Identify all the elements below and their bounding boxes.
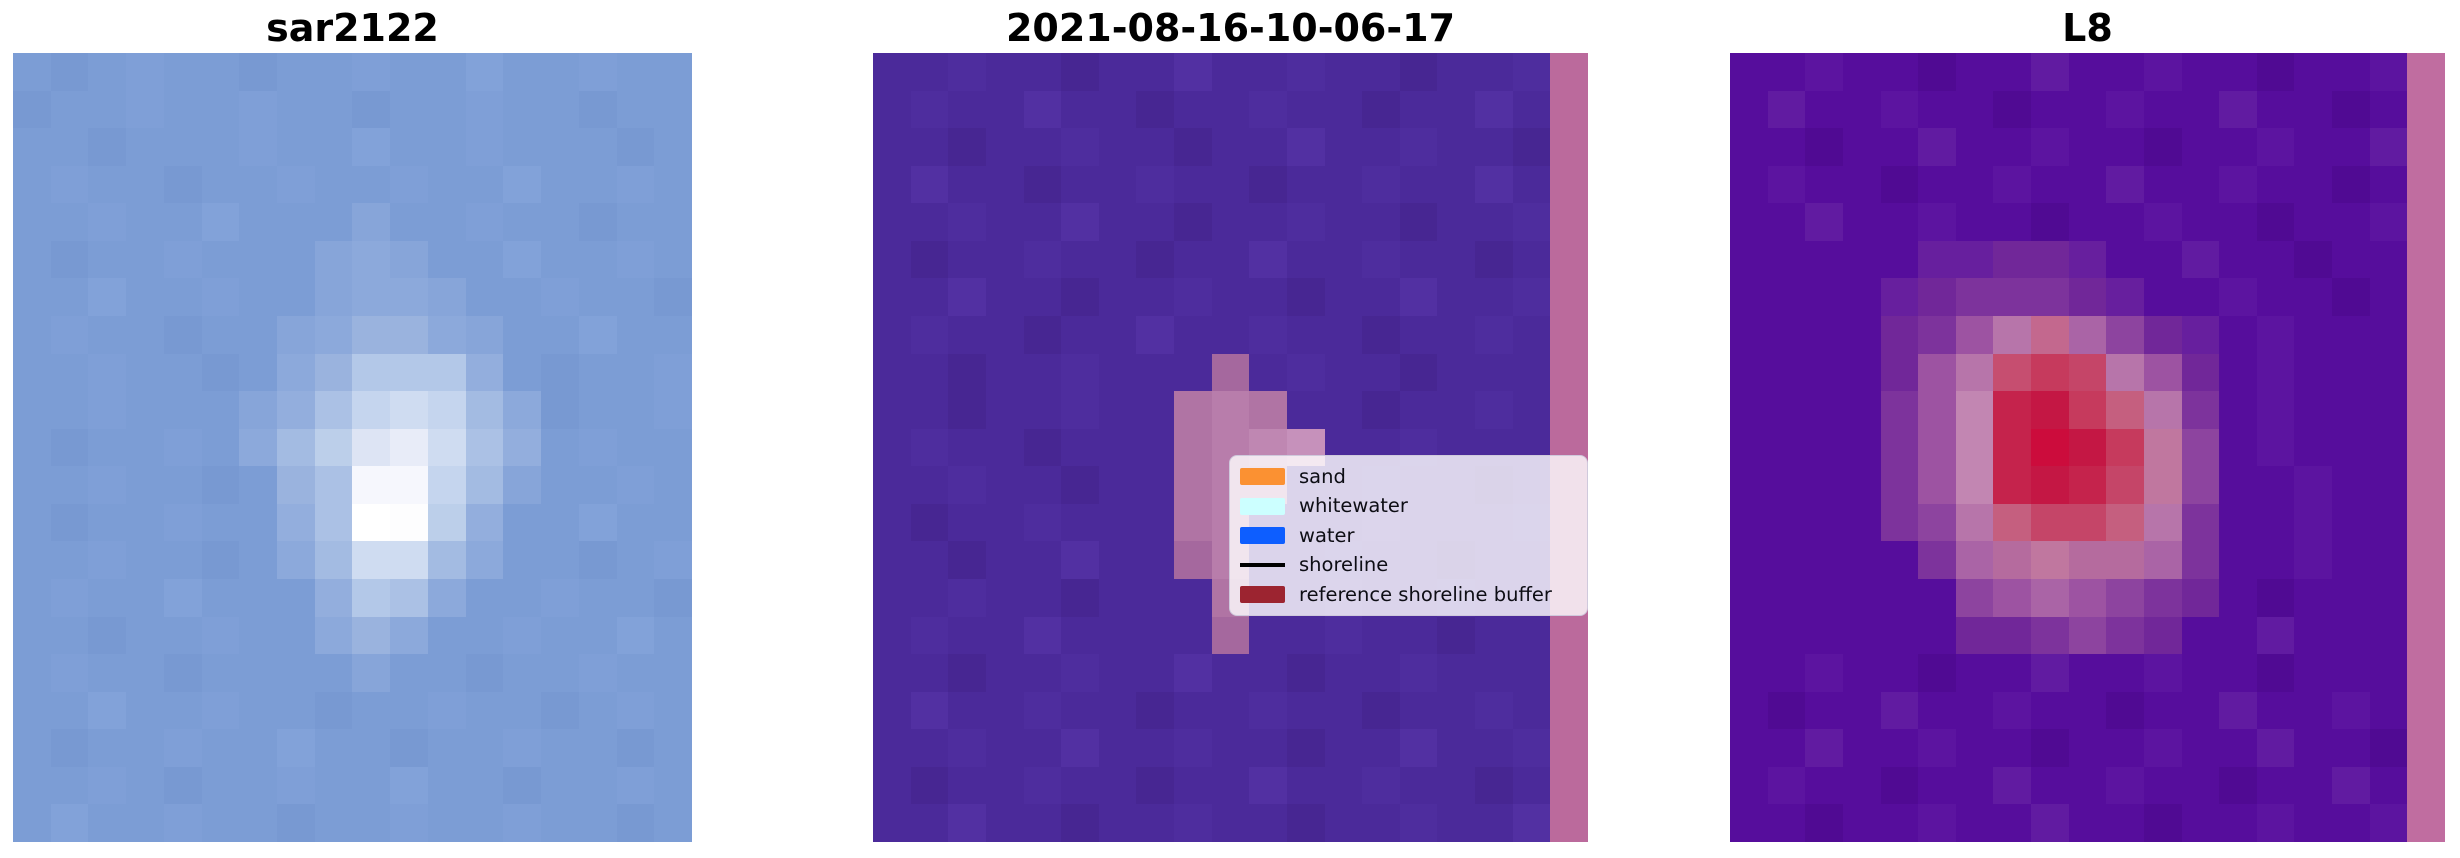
pixel-cell (1993, 617, 2031, 655)
pixel-cell (202, 354, 240, 392)
pixel-cell (1918, 504, 1956, 542)
pixel-cell (2219, 804, 2257, 842)
pixel-cell (1249, 128, 1287, 166)
pixel-cell (2257, 654, 2295, 692)
pixel-cell (277, 203, 315, 241)
pixel-cell (1550, 804, 1588, 842)
pixel-cell (2219, 729, 2257, 767)
pixel-cell (2219, 692, 2257, 730)
pixel-cell (2144, 654, 2182, 692)
pixel-cell (911, 692, 949, 730)
pixel-cell (873, 354, 911, 392)
pixel-cell (1513, 203, 1551, 241)
pixel-cell (1061, 128, 1099, 166)
pixel-cell (873, 391, 911, 429)
pixel-cell (2219, 354, 2257, 392)
pixel-cell (1805, 692, 1843, 730)
pixel-cell (2031, 541, 2069, 579)
pixel-cell (1730, 541, 1768, 579)
pixel-cell (1061, 541, 1099, 579)
pixel-cell (1768, 53, 1806, 91)
pixel-cell (2257, 541, 2295, 579)
pixel-cell (352, 278, 390, 316)
pixel-cell (2294, 429, 2332, 467)
pixel-cell (1805, 617, 1843, 655)
pixel-cell (352, 166, 390, 204)
pixel-cell (1287, 354, 1325, 392)
pixel-cell (2407, 241, 2445, 279)
pixel-cell (2407, 53, 2445, 91)
pixel-cell (1362, 278, 1400, 316)
pixel-cell (88, 128, 126, 166)
pixel-cell (13, 128, 51, 166)
pixel-cell (1174, 128, 1212, 166)
pixel-cell (2407, 128, 2445, 166)
pixel-cell (51, 767, 89, 805)
pixel-cell (466, 654, 504, 692)
pixel-cell (202, 692, 240, 730)
pixel-cell (2294, 166, 2332, 204)
panel-title-sar2122: sar2122 (13, 5, 692, 51)
pixel-cell (126, 804, 164, 842)
pixel-cell (2182, 767, 2220, 805)
pixel-cell (1136, 429, 1174, 467)
pixel-cell (911, 617, 949, 655)
pixel-cell (1174, 729, 1212, 767)
pixel-cell (1805, 316, 1843, 354)
pixel-cell (1843, 316, 1881, 354)
pixel-cell (1730, 354, 1768, 392)
pixel-cell (1513, 692, 1551, 730)
pixel-cell (352, 654, 390, 692)
pixel-cell (2182, 316, 2220, 354)
pixel-cell (2031, 579, 2069, 617)
pixel-cell (1550, 241, 1588, 279)
pixel-cell (541, 391, 579, 429)
pixel-cell (617, 466, 655, 504)
pixel-cell (948, 767, 986, 805)
pixel-cell (164, 203, 202, 241)
pixel-cell (126, 767, 164, 805)
pixel-cell (2370, 241, 2408, 279)
pixel-cell (654, 278, 692, 316)
pixel-cell (1249, 617, 1287, 655)
pixel-cell (1400, 278, 1438, 316)
pixel-cell (315, 692, 353, 730)
pixel-cell (1993, 767, 2031, 805)
pixel-cell (911, 429, 949, 467)
pixel-cell (2106, 729, 2144, 767)
pixel-cell (1174, 91, 1212, 129)
pixel-cell (986, 804, 1024, 842)
pixel-cell (1805, 429, 1843, 467)
legend-entry: reference shoreline buffer (1240, 580, 1577, 609)
pixel-cell (1881, 203, 1919, 241)
pixel-cell (1730, 241, 1768, 279)
pixel-cell (948, 504, 986, 542)
pixel-cell (1881, 429, 1919, 467)
pixel-cell (1918, 241, 1956, 279)
pixel-cell (1730, 804, 1768, 842)
pixel-cell (541, 203, 579, 241)
pixel-cell (503, 767, 541, 805)
pixel-cell (2182, 429, 2220, 467)
pixel-cell (13, 767, 51, 805)
pixel-cell (1325, 316, 1363, 354)
pixel-cell (1061, 466, 1099, 504)
pixel-cell (2069, 128, 2107, 166)
pixel-cell (2370, 466, 2408, 504)
pixel-cell (428, 166, 466, 204)
pixel-cell (428, 692, 466, 730)
pixel-cell (503, 654, 541, 692)
pixel-cell (13, 579, 51, 617)
pixel-cell (88, 804, 126, 842)
pixel-cell (1174, 53, 1212, 91)
pixel-cell (1843, 617, 1881, 655)
pixel-cell (1805, 278, 1843, 316)
pixel-cell (2370, 91, 2408, 129)
pixel-cell (1513, 278, 1551, 316)
pixel-cell (1730, 391, 1768, 429)
pixel-cell (2106, 53, 2144, 91)
pixel-cell (277, 767, 315, 805)
pixel-cell (2219, 391, 2257, 429)
pixel-cell (1437, 53, 1475, 91)
pixel-cell (948, 541, 986, 579)
pixel-cell (911, 91, 949, 129)
pixel-cell (2294, 316, 2332, 354)
pixel-cell (654, 128, 692, 166)
pixel-cell (239, 316, 277, 354)
pixel-cell (2257, 166, 2295, 204)
pixel-cell (2106, 504, 2144, 542)
pixel-cell (239, 128, 277, 166)
pixel-cell (390, 53, 428, 91)
pixel-cell (1287, 166, 1325, 204)
pixel-cell (13, 278, 51, 316)
pixel-cell (654, 166, 692, 204)
legend-label: reference shoreline buffer (1299, 585, 1552, 605)
pixel-cell (1061, 203, 1099, 241)
pixel-cell (1918, 354, 1956, 392)
pixel-cell (1061, 166, 1099, 204)
pixel-cell (1400, 729, 1438, 767)
pixel-cell (428, 504, 466, 542)
pixel-cell (2294, 203, 2332, 241)
pixel-cell (1024, 391, 1062, 429)
pixel-cell (1956, 278, 1994, 316)
pixel-cell (2144, 53, 2182, 91)
pixel-cell (1843, 53, 1881, 91)
pixel-cell (873, 128, 911, 166)
pixel-cell (1061, 278, 1099, 316)
pixel-cell (579, 692, 617, 730)
pixel-cell (1730, 579, 1768, 617)
pixel-cell (2031, 729, 2069, 767)
pixel-cell (1099, 166, 1137, 204)
pixel-cell (541, 278, 579, 316)
pixel-cell (579, 504, 617, 542)
pixel-cell (1136, 53, 1174, 91)
pixel-cell (1843, 241, 1881, 279)
pixel-cell (2294, 767, 2332, 805)
pixel-cell (1099, 241, 1137, 279)
pixel-cell (873, 579, 911, 617)
pixel-cell (277, 654, 315, 692)
pixel-cell (1918, 617, 1956, 655)
pixel-cell (2144, 729, 2182, 767)
pixel-cell (428, 91, 466, 129)
pixel-cell (1400, 316, 1438, 354)
pixel-cell (617, 767, 655, 805)
pixel-cell (1287, 241, 1325, 279)
pixel-cell (2332, 91, 2370, 129)
pixel-cell (164, 804, 202, 842)
pixel-cell (1325, 203, 1363, 241)
pixel-cell (51, 466, 89, 504)
pixel-cell (654, 391, 692, 429)
pixel-cell (1956, 241, 1994, 279)
pixel-cell (948, 166, 986, 204)
shoreline-line-swatch (1240, 563, 1285, 567)
pixel-cell (1805, 504, 1843, 542)
pixel-cell (1325, 241, 1363, 279)
pixel-cell (1325, 128, 1363, 166)
pixel-cell (1843, 278, 1881, 316)
pixel-cell (1136, 91, 1174, 129)
pixel-cell (2219, 128, 2257, 166)
pixel-cell (2069, 203, 2107, 241)
pixel-cell (126, 53, 164, 91)
pixel-cell (1174, 391, 1212, 429)
pixel-cell (315, 354, 353, 392)
pixel-cell (2294, 354, 2332, 392)
pixel-cell (541, 541, 579, 579)
pixel-cell (1437, 203, 1475, 241)
pixel-cell (352, 541, 390, 579)
pixel-cell (390, 391, 428, 429)
pixel-cell (1099, 278, 1137, 316)
pixel-cell (1513, 316, 1551, 354)
pixel-cell (390, 541, 428, 579)
pixel-cell (1287, 767, 1325, 805)
pixel-cell (1212, 692, 1250, 730)
pixel-cell (1174, 166, 1212, 204)
pixel-cell (1325, 278, 1363, 316)
pixel-cell (1843, 504, 1881, 542)
pixel-cell (1513, 241, 1551, 279)
pixel-cell (466, 541, 504, 579)
pixel-cell (2257, 128, 2295, 166)
pixel-cell (2407, 354, 2445, 392)
pixel-cell (2219, 316, 2257, 354)
pixel-cell (315, 504, 353, 542)
pixel-cell (13, 354, 51, 392)
pixel-cell (948, 203, 986, 241)
pixel-cell (88, 617, 126, 655)
pixel-cell (654, 316, 692, 354)
pixel-cell (2182, 278, 2220, 316)
pixel-cell (911, 541, 949, 579)
pixel-cell (1136, 804, 1174, 842)
pixel-cell (986, 316, 1024, 354)
pixel-cell (164, 617, 202, 655)
pixel-cell (503, 203, 541, 241)
pixel-cell (1249, 166, 1287, 204)
pixel-cell (2106, 278, 2144, 316)
pixel-cell (1174, 241, 1212, 279)
pixel-cell (428, 767, 466, 805)
pixel-cell (2219, 278, 2257, 316)
pixel-cell (1362, 354, 1400, 392)
pixel-cell (2257, 429, 2295, 467)
pixel-cell (13, 391, 51, 429)
pixel-cell (202, 617, 240, 655)
pixel-cell (1768, 654, 1806, 692)
pixel-cell (1993, 729, 2031, 767)
pixel-cell (1249, 391, 1287, 429)
pixel-cell (1768, 354, 1806, 392)
pixel-cell (1956, 316, 1994, 354)
pixel-cell (1061, 654, 1099, 692)
pixel-cell (1881, 729, 1919, 767)
pixel-cell (2257, 692, 2295, 730)
pixel-cell (1024, 354, 1062, 392)
pixel-cell (2332, 354, 2370, 392)
pixel-cell (579, 654, 617, 692)
pixel-cell (126, 278, 164, 316)
pixel-cell (1287, 203, 1325, 241)
pixel-cell (2370, 504, 2408, 542)
pixel-cell (428, 541, 466, 579)
pixel-cell (239, 53, 277, 91)
pixel-cell (315, 53, 353, 91)
pixel-cell (352, 354, 390, 392)
pixel-cell (617, 166, 655, 204)
pixel-cell (654, 729, 692, 767)
pixel-cell (1881, 278, 1919, 316)
pixel-cell (277, 504, 315, 542)
pixel-cell (2106, 804, 2144, 842)
pixel-cell (579, 617, 617, 655)
pixel-cell (352, 804, 390, 842)
pixel-cell (2257, 391, 2295, 429)
pixel-cell (986, 166, 1024, 204)
pixel-cell (2332, 166, 2370, 204)
pixel-cell (390, 429, 428, 467)
pixel-cell (1768, 278, 1806, 316)
pixel-cell (541, 166, 579, 204)
pixel-cell (2144, 767, 2182, 805)
pixel-cell (1918, 541, 1956, 579)
pixel-cell (2069, 241, 2107, 279)
legend-label: whitewater (1299, 496, 1408, 516)
pixel-cell (986, 579, 1024, 617)
pixel-cell (1475, 391, 1513, 429)
pixel-cell (503, 729, 541, 767)
pixel-cell (352, 91, 390, 129)
pixel-cell (1362, 729, 1400, 767)
pixel-cell (88, 729, 126, 767)
pixel-cell (239, 692, 277, 730)
pixel-cell (13, 316, 51, 354)
legend-label: shoreline (1299, 555, 1388, 575)
pixel-cell (2182, 53, 2220, 91)
pixel-cell (1325, 53, 1363, 91)
pixel-cell (654, 692, 692, 730)
pixel-cell (352, 241, 390, 279)
pixel-cell (1099, 429, 1137, 467)
pixel-cell (503, 804, 541, 842)
pixel-cell (2106, 692, 2144, 730)
pixel-cell (2069, 692, 2107, 730)
pixel-cell (1174, 316, 1212, 354)
pixel-cell (1768, 316, 1806, 354)
pixel-cell (654, 579, 692, 617)
pixel-cell (503, 128, 541, 166)
pixel-cell (1550, 617, 1588, 655)
reference-shoreline-buffer-swatch (1240, 586, 1285, 603)
pixel-cell (911, 466, 949, 504)
pixel-cell (1061, 692, 1099, 730)
pixel-cell (1024, 692, 1062, 730)
pixel-cell (2182, 504, 2220, 542)
pixel-cell (277, 354, 315, 392)
panel-title-date: 2021-08-16-10-06-17 (873, 5, 1588, 51)
pixel-cell (1881, 541, 1919, 579)
pixel-cell (13, 692, 51, 730)
pixel-cell (2031, 316, 2069, 354)
pixel-cell (1956, 692, 1994, 730)
pixel-cell (352, 767, 390, 805)
pixel-cell (1437, 316, 1475, 354)
pixel-cell (2257, 91, 2295, 129)
pixel-cell (2069, 53, 2107, 91)
pixel-cell (1024, 541, 1062, 579)
pixel-cell (126, 354, 164, 392)
pixel-cell (126, 241, 164, 279)
sand-swatch (1240, 468, 1285, 485)
pixel-cell (1805, 654, 1843, 692)
pixel-cell (164, 53, 202, 91)
pixel-cell (1325, 692, 1363, 730)
pixel-cell (1099, 91, 1137, 129)
pixel-cell (1400, 354, 1438, 392)
pixel-cell (2219, 579, 2257, 617)
pixel-cell (2407, 504, 2445, 542)
pixel-cell (1918, 53, 1956, 91)
pixel-cell (1437, 804, 1475, 842)
pixel-cell (617, 541, 655, 579)
pixel-cell (2294, 278, 2332, 316)
pixel-cell (466, 804, 504, 842)
pixel-cell (1475, 316, 1513, 354)
pixel-cell (2219, 617, 2257, 655)
pixel-cell (352, 429, 390, 467)
pixel-cell (2069, 278, 2107, 316)
pixel-cell (986, 53, 1024, 91)
pixel-cell (2069, 166, 2107, 204)
pixel-cell (1099, 804, 1137, 842)
pixel-cell (1136, 692, 1174, 730)
pixel-cell (911, 391, 949, 429)
pixel-cell (1843, 391, 1881, 429)
pixel-cell (1437, 278, 1475, 316)
pixel-cell (873, 541, 911, 579)
pixel-cell (503, 91, 541, 129)
pixel-cell (126, 429, 164, 467)
